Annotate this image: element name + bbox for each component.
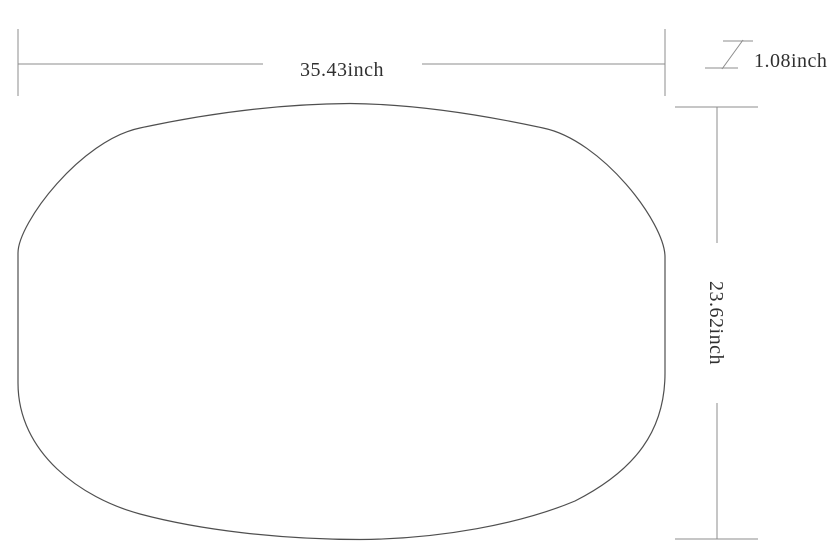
width-dimension-label: 35.43inch (300, 59, 384, 81)
dimension-drawing-canvas: 35.43inch 1.08inch 23.62inch (0, 0, 840, 557)
height-dimension-label: 23.62inch (705, 281, 727, 365)
thickness-dimension-label: 1.08inch (754, 50, 827, 72)
thickness-symbol-diagonal-line (722, 40, 743, 69)
plate-dimension-diagram: 35.43inch 1.08inch 23.62inch (0, 0, 840, 557)
plate-outline-shape (18, 104, 665, 540)
